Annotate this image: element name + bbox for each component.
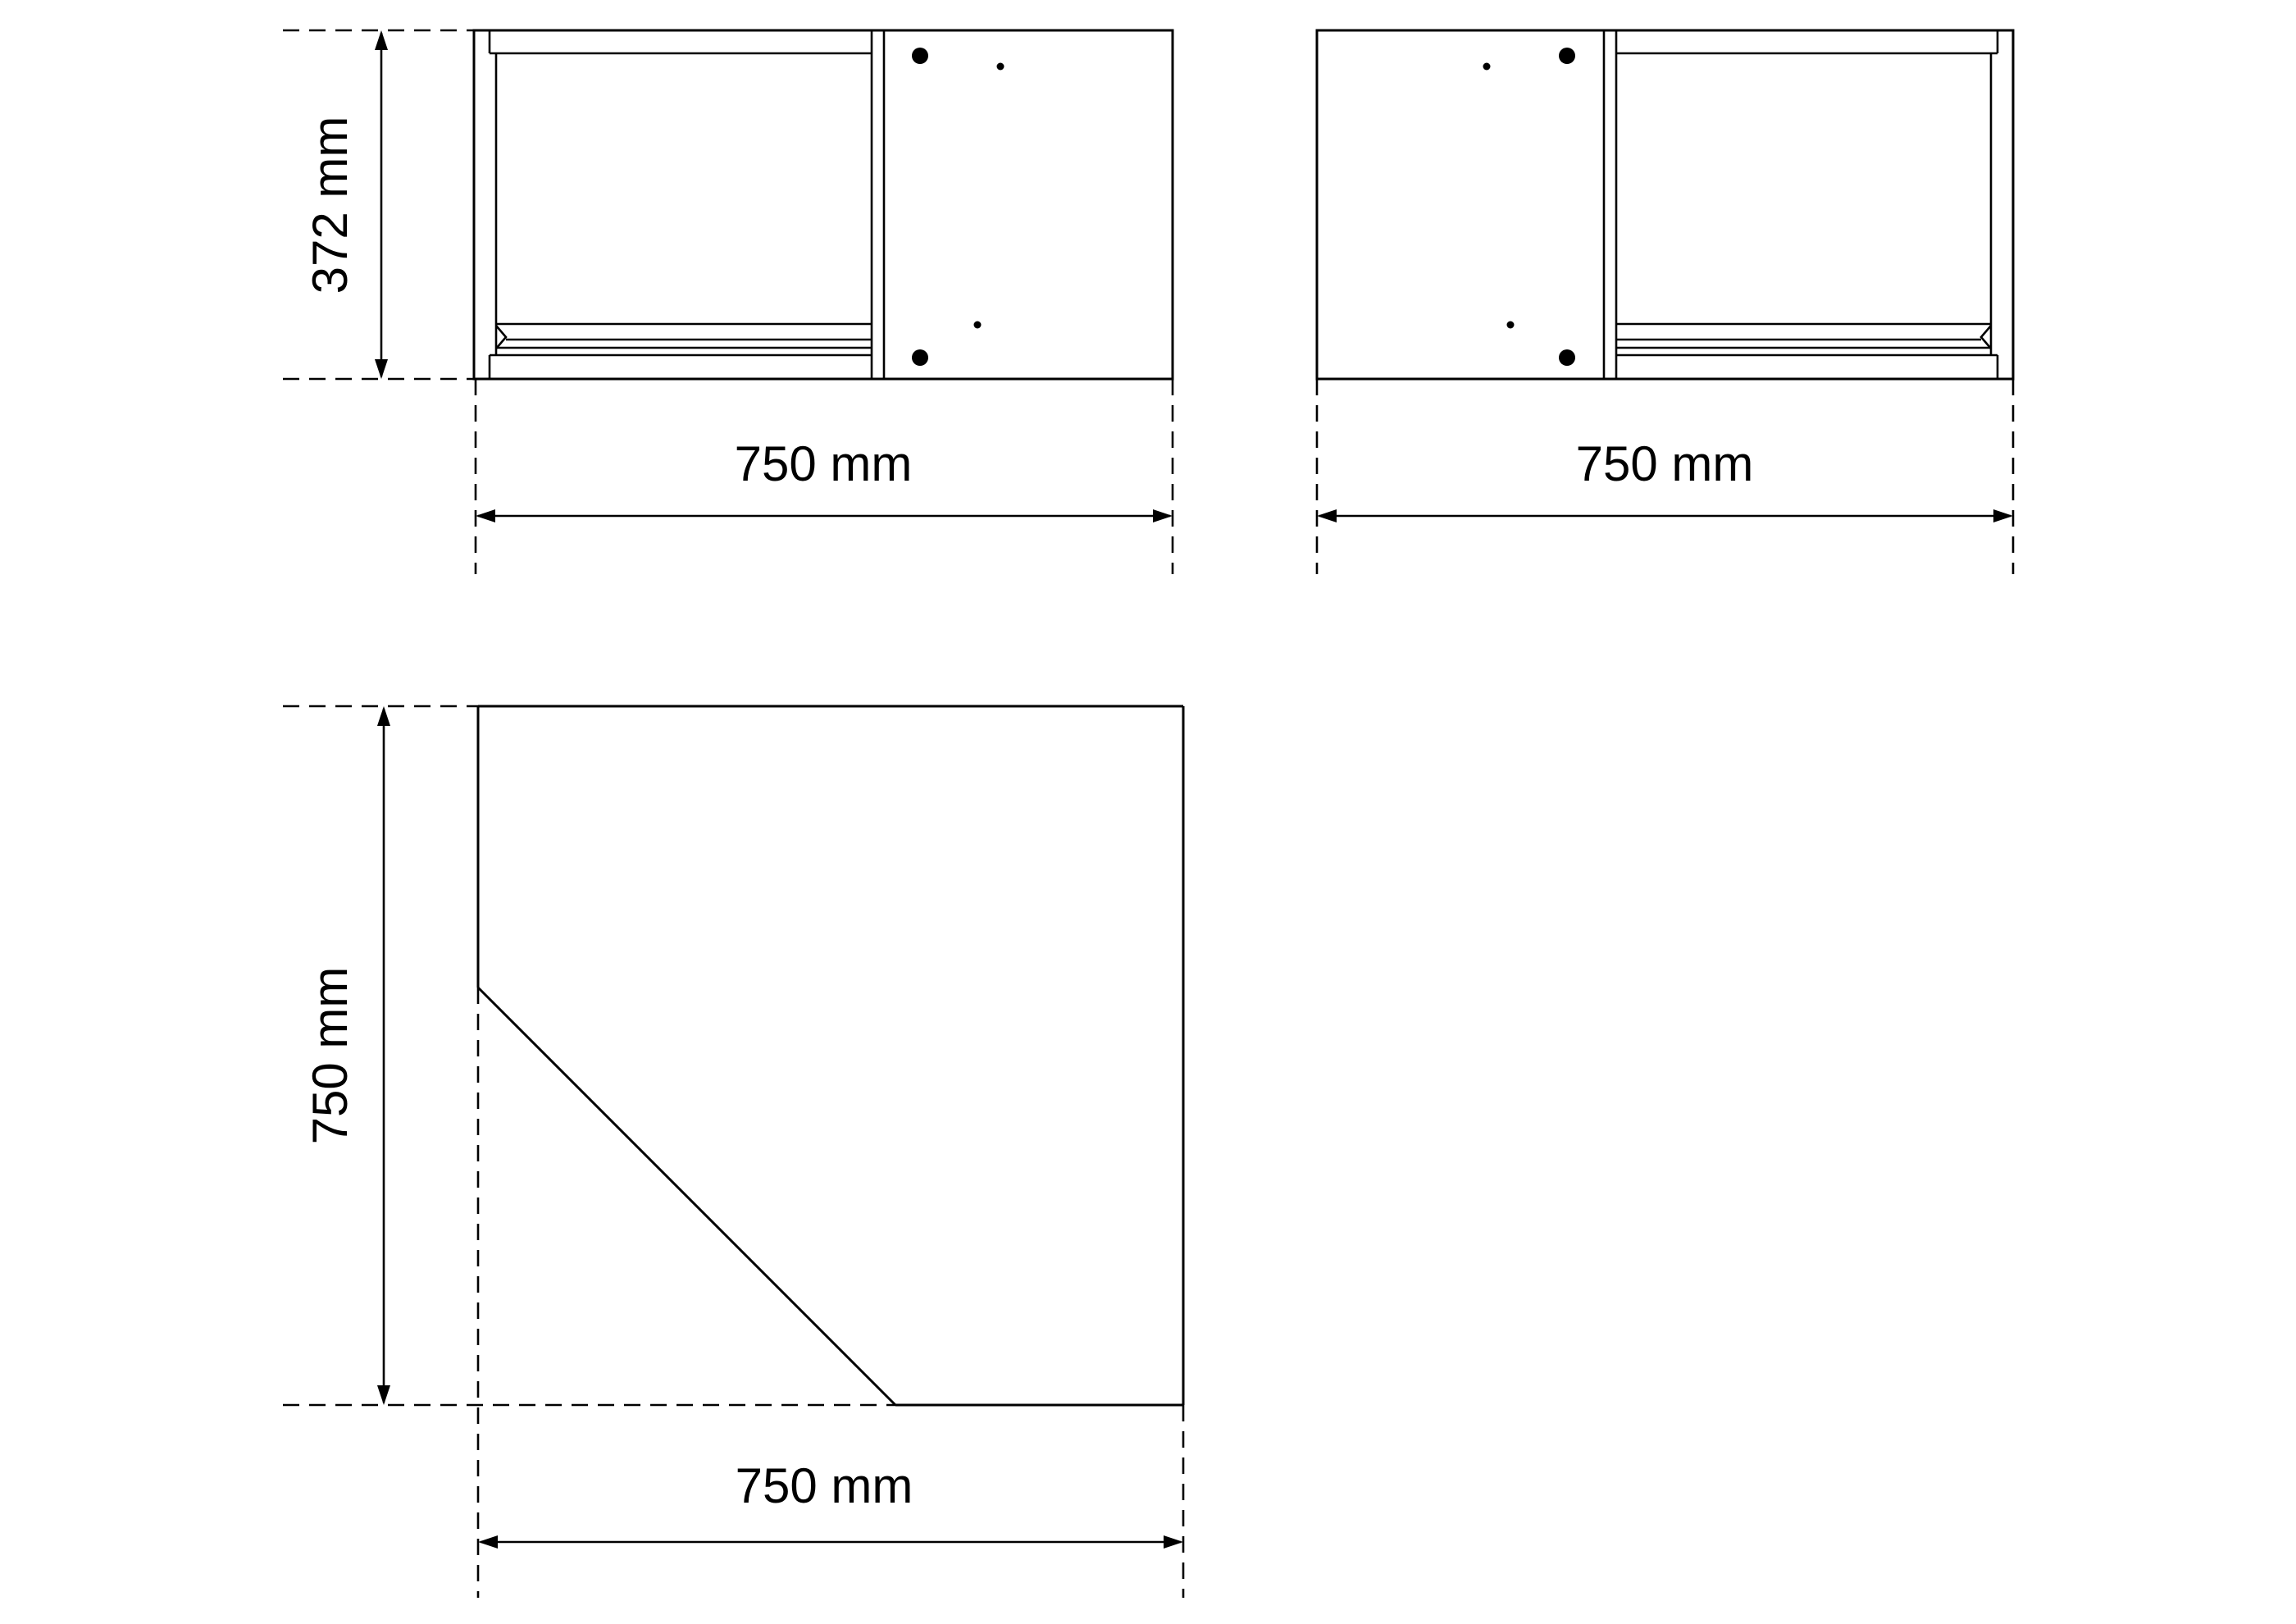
front-view-right: 750 mm	[1317, 30, 2013, 574]
dimension-height-372: 372 mm	[283, 30, 474, 379]
arrowhead-right	[1164, 1535, 1183, 1549]
shelf-profile	[1616, 324, 1998, 379]
hinge-hole-small-bottom	[1507, 322, 1515, 329]
cabinet-outline	[474, 30, 1173, 379]
arrowhead-up	[377, 706, 390, 726]
arrowhead-right	[1993, 509, 2013, 522]
dimension-label-width: 750 mm	[1576, 436, 1754, 491]
shelf-edge-chevron	[496, 326, 506, 349]
dimension-height-750: 750 mm	[283, 706, 895, 1405]
arrowhead-down	[377, 1385, 390, 1405]
dimension-label-width: 750 mm	[736, 1458, 913, 1513]
dimension-label-width: 750 mm	[735, 436, 913, 491]
hinge-hole-large-top	[912, 48, 928, 64]
plan-view: 750 mm 750 mm	[283, 706, 1183, 1598]
cabinet-divider	[872, 30, 884, 379]
hinge-hole-large-bottom	[912, 349, 928, 366]
dimension-width-750: 750 mm	[478, 988, 1183, 1598]
arrowhead-down	[375, 359, 388, 379]
door-panel	[1483, 48, 1576, 366]
shelf-profile	[490, 324, 872, 379]
technical-drawing-canvas: 372 mm 750 mm	[0, 0, 2296, 1624]
top-rail	[490, 30, 872, 53]
hinge-hole-small-bottom	[974, 322, 982, 329]
arrowhead-up	[375, 30, 388, 50]
hinge-hole-small-top	[1483, 63, 1491, 71]
cabinet-outline	[1317, 30, 2013, 379]
front-view-left: 372 mm 750 mm	[283, 30, 1173, 574]
diagonal-front	[478, 988, 895, 1405]
hinge-hole-small-top	[997, 63, 1004, 71]
dimension-label-height: 750 mm	[303, 967, 358, 1145]
shelf-edge-chevron	[1981, 326, 1991, 349]
top-rail	[1616, 30, 1998, 53]
hinge-hole-large-top	[1559, 48, 1575, 64]
hinge-hole-large-bottom	[1559, 349, 1575, 366]
dimension-width-750: 750 mm	[1317, 379, 2013, 574]
arrowhead-left	[478, 1535, 498, 1549]
footprint-outline	[478, 706, 1183, 1405]
dimension-width-750: 750 mm	[476, 379, 1173, 574]
dimension-label-height: 372 mm	[303, 116, 358, 294]
arrowhead-left	[1317, 509, 1337, 522]
cabinet-divider	[1604, 30, 1616, 379]
door-panel	[912, 48, 1004, 366]
arrowhead-right	[1153, 509, 1173, 522]
arrowhead-left	[476, 509, 495, 522]
